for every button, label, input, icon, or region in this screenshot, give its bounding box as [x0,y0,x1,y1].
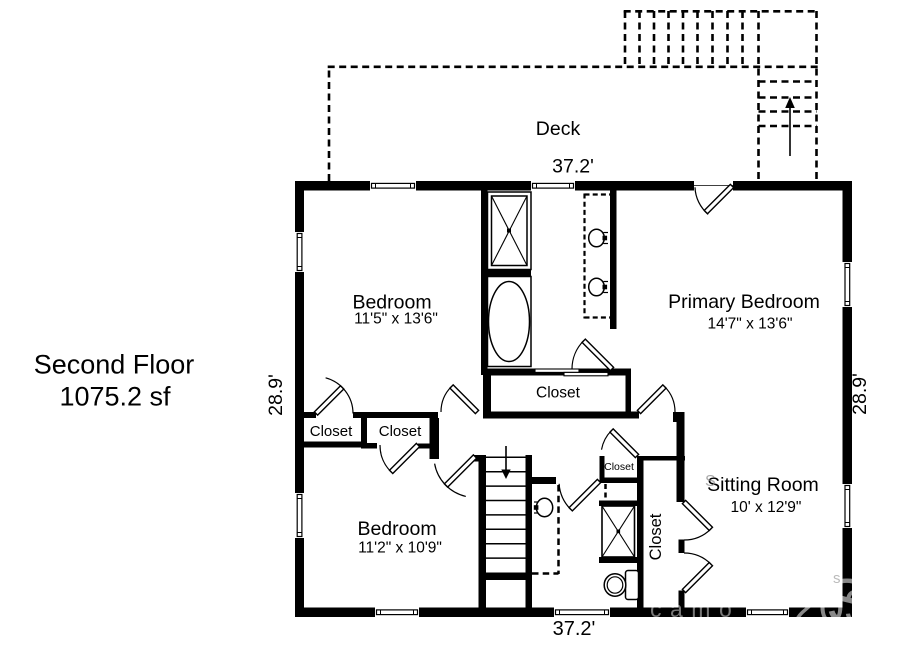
svg-text:Closet: Closet [379,423,422,440]
svg-text:28.9': 28.9' [265,374,287,416]
svg-text:Closet: Closet [310,423,353,440]
svg-text:Bedroom: Bedroom [357,518,436,540]
svg-text:Sitting Room: Sitting Room [707,474,819,496]
svg-text:37.2': 37.2' [552,156,594,178]
svg-text:11'2" x 10'9": 11'2" x 10'9" [358,540,442,557]
svg-text:11'5" x 13'6": 11'5" x 13'6" [354,311,438,328]
svg-text:Closet: Closet [536,385,581,402]
svg-text:10' x 12'9": 10' x 12'9" [731,499,802,516]
svg-text:14'7" x 13'6": 14'7" x 13'6" [707,316,792,333]
svg-text:camo: camo [650,596,740,622]
svg-text:Primary Bedroom: Primary Bedroom [668,291,820,313]
svg-text:S: S [705,473,716,490]
svg-text:s: s [833,570,841,587]
svg-text:37.2': 37.2' [553,618,596,640]
svg-text:Closet: Closet [604,461,634,473]
svg-text:Second Floor: Second Floor [34,350,195,380]
svg-text:Deck: Deck [536,118,581,140]
svg-text:28.9': 28.9' [849,373,871,415]
svg-text:Closet: Closet [647,513,665,560]
svg-text:1075.2 sf: 1075.2 sf [59,382,171,412]
